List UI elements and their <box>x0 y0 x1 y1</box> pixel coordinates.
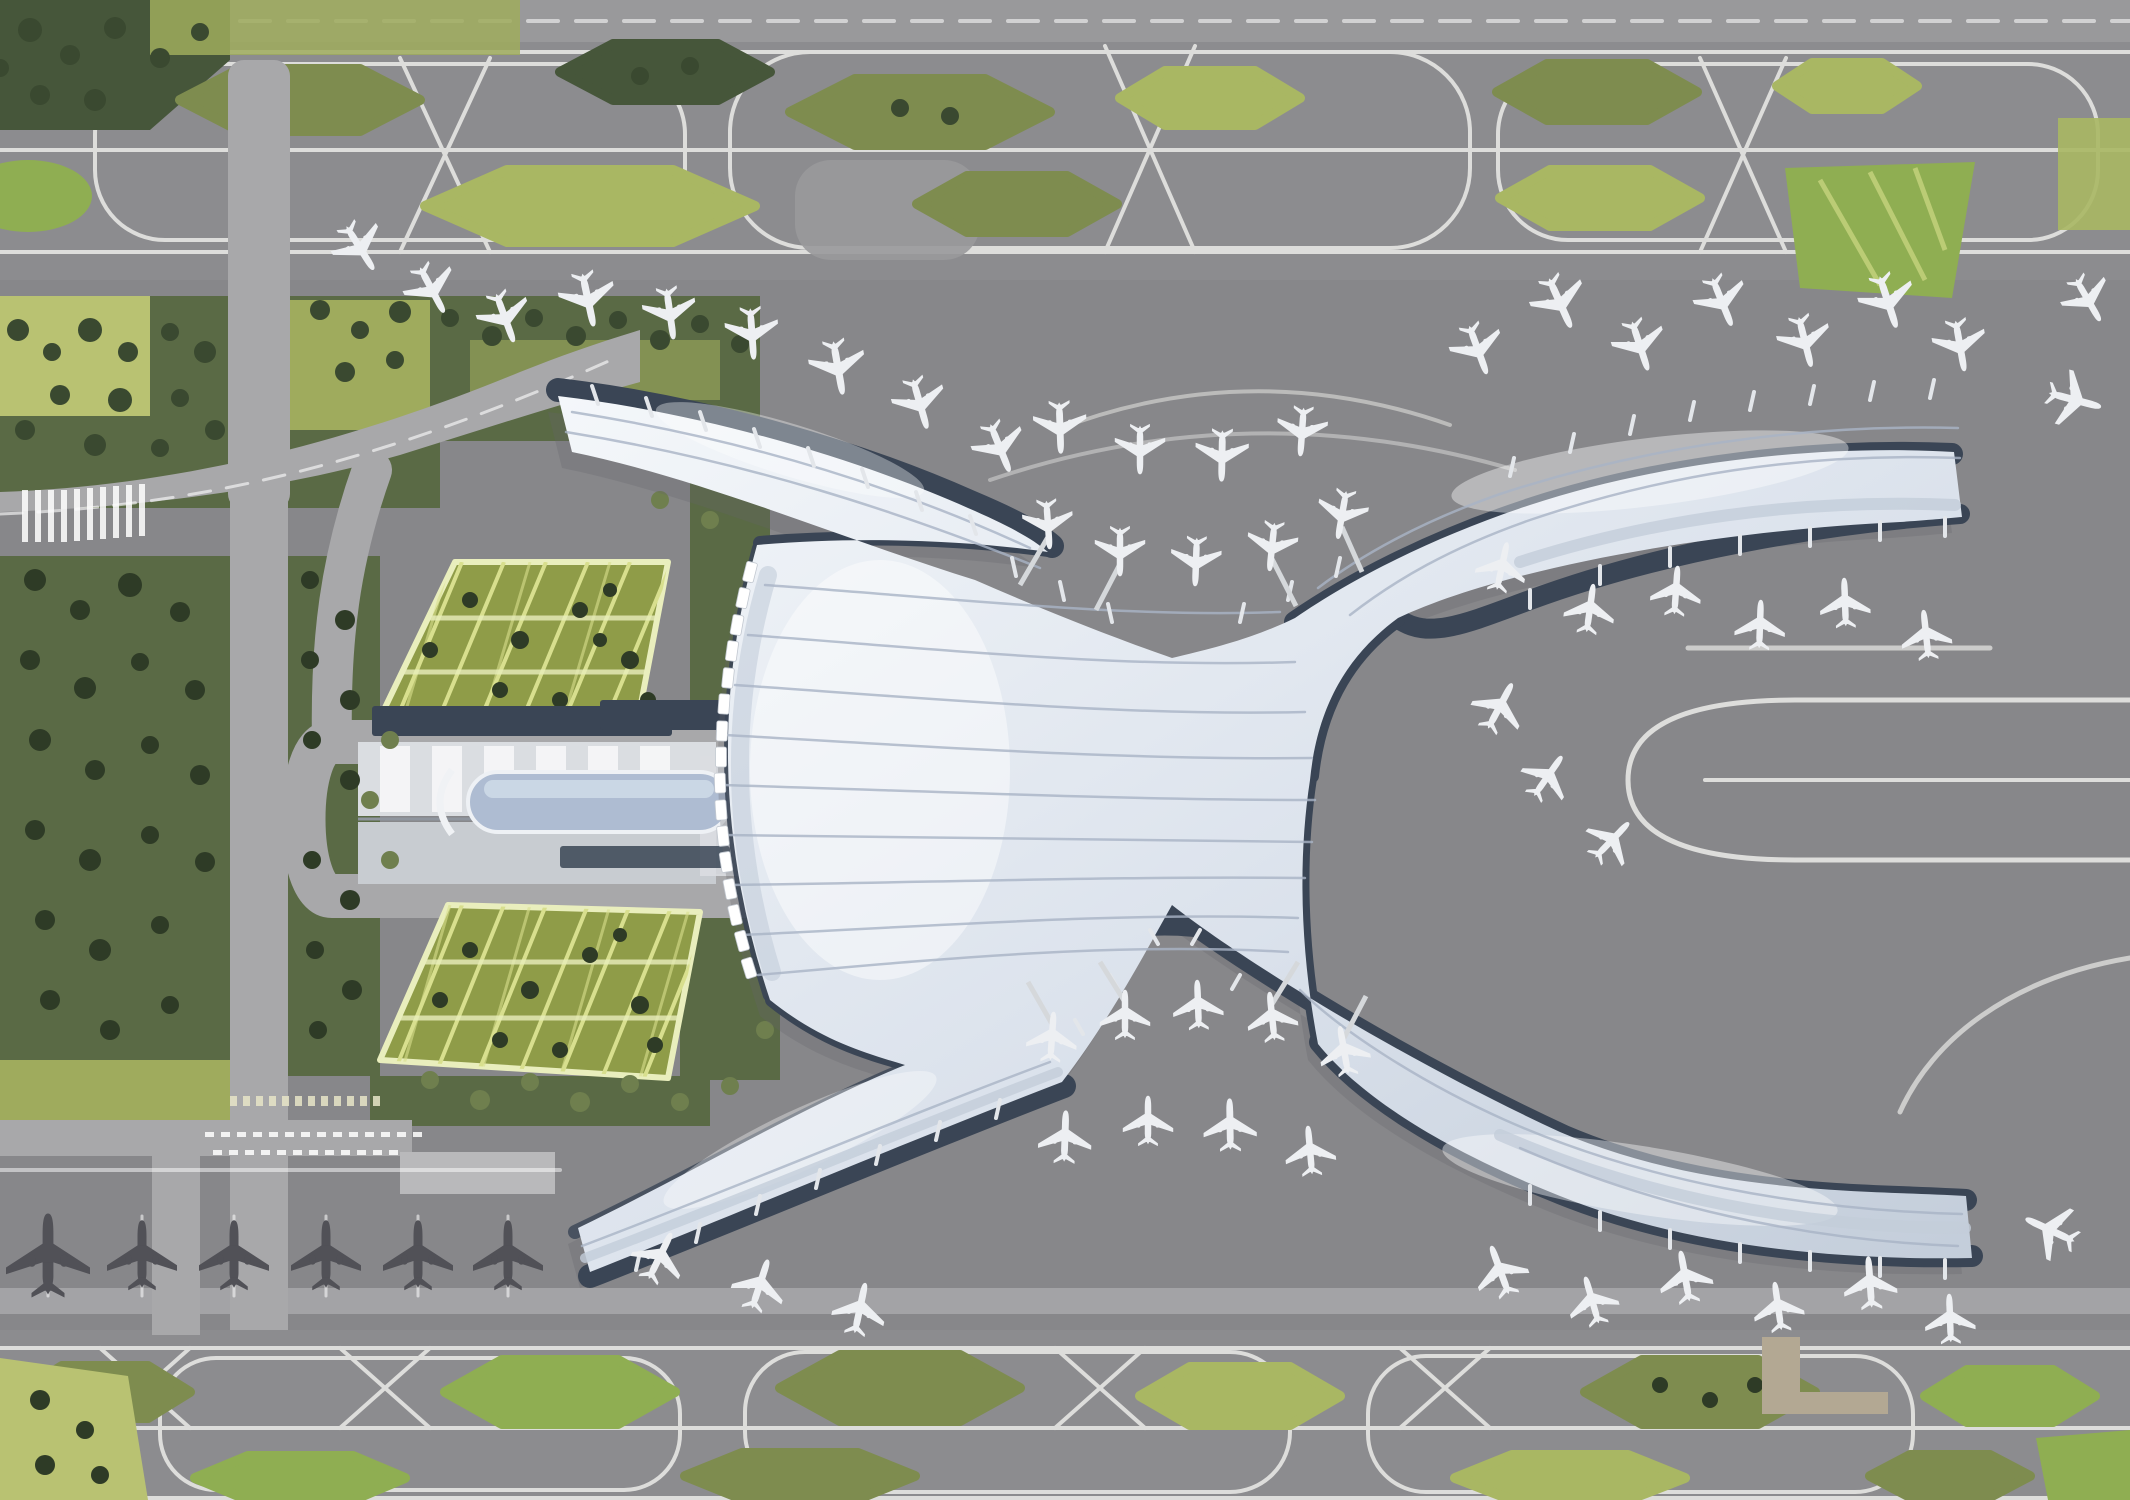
airport-aerial-rendering <box>0 0 2130 1500</box>
airport-aerial-image <box>0 0 2130 1500</box>
